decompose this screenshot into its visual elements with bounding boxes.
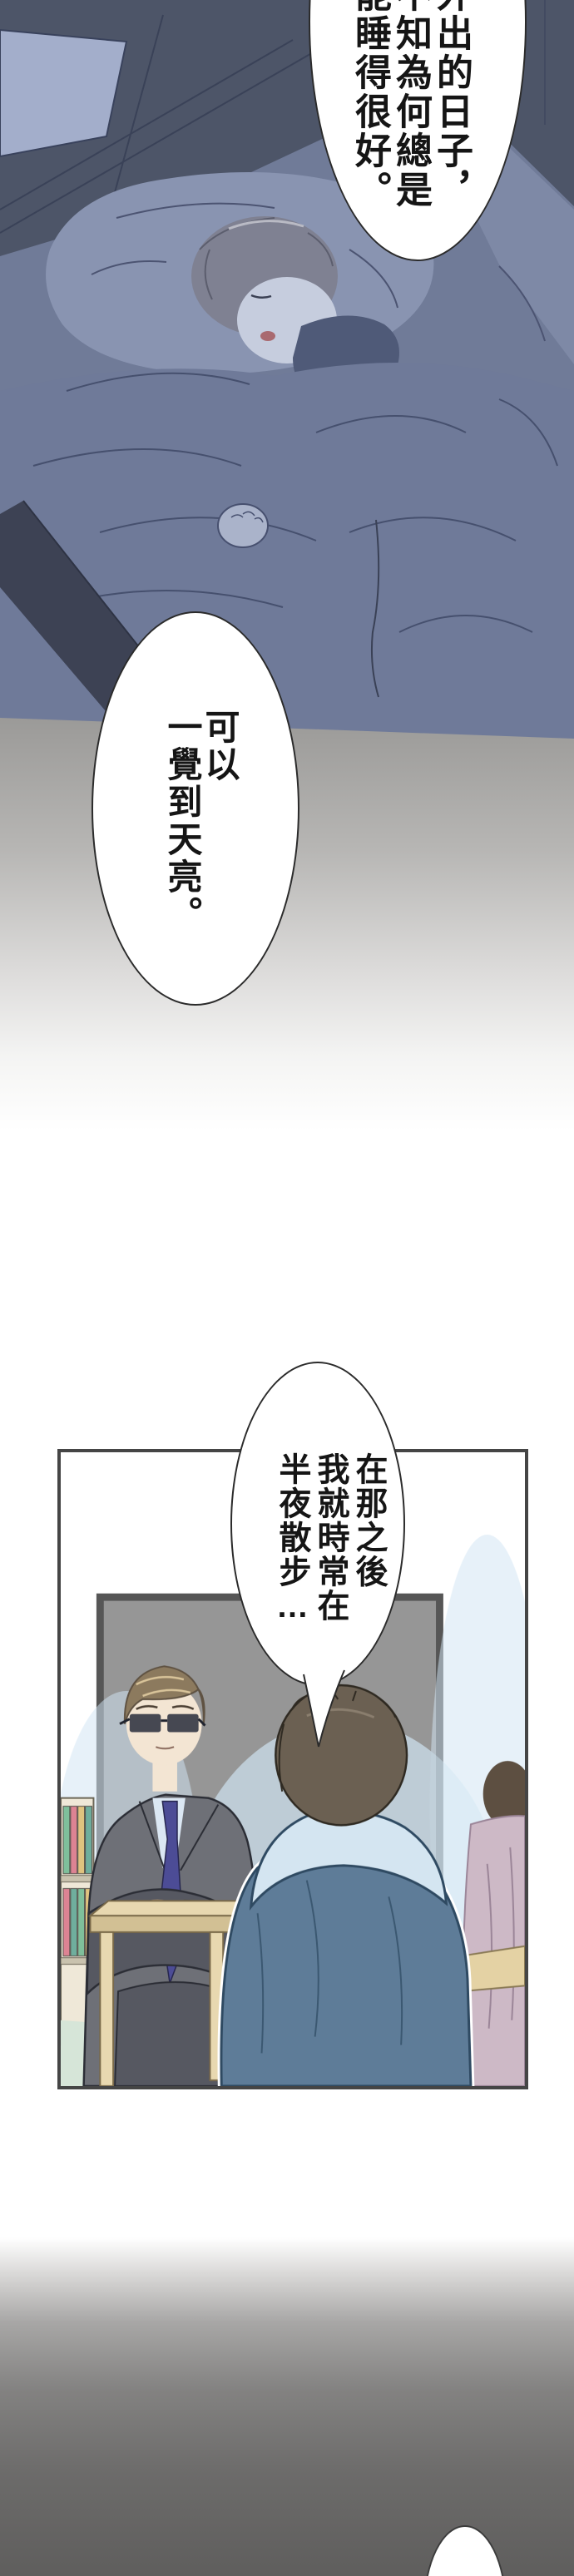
- text-column: 在那之後: [349, 1452, 388, 1626]
- tail-fill: [304, 1670, 344, 1747]
- speech-text-night-walks: 在那之後 我就時常在 半夜散步…: [273, 1452, 388, 1626]
- text-column: 我就時常在: [311, 1452, 349, 1626]
- speech-text-sleep-quality: 外出的日子， 不知為何總是 能睡得很好。: [349, 0, 472, 210]
- text-column: 可以: [201, 709, 239, 933]
- table-front: [90, 1916, 233, 1932]
- glasses-right-lens: [167, 1714, 198, 1733]
- text-column: 不知為何總是: [390, 0, 431, 210]
- manga-page: 外出的日子， 不知為何總是 能睡得很好。 可以 一覺到天亮。: [0, 0, 574, 2576]
- table-leg-left: [100, 1932, 113, 2086]
- text-column: 能睡得很好。: [349, 0, 390, 210]
- dark-fade-bottom: [0, 2237, 574, 2576]
- bubble-tail: [291, 1659, 358, 1755]
- text-column: 半夜散步…: [273, 1452, 311, 1626]
- glasses-left-lens: [130, 1714, 161, 1733]
- text-column: 外出的日子，: [431, 0, 472, 210]
- table-top: [90, 1901, 242, 1916]
- sleeping-boy-hand: [218, 504, 268, 547]
- speech-text-sleep-through: 可以 一覺到天亮。: [164, 709, 239, 933]
- mouth: [260, 331, 275, 341]
- text-column: 一覺到天亮。: [164, 709, 201, 933]
